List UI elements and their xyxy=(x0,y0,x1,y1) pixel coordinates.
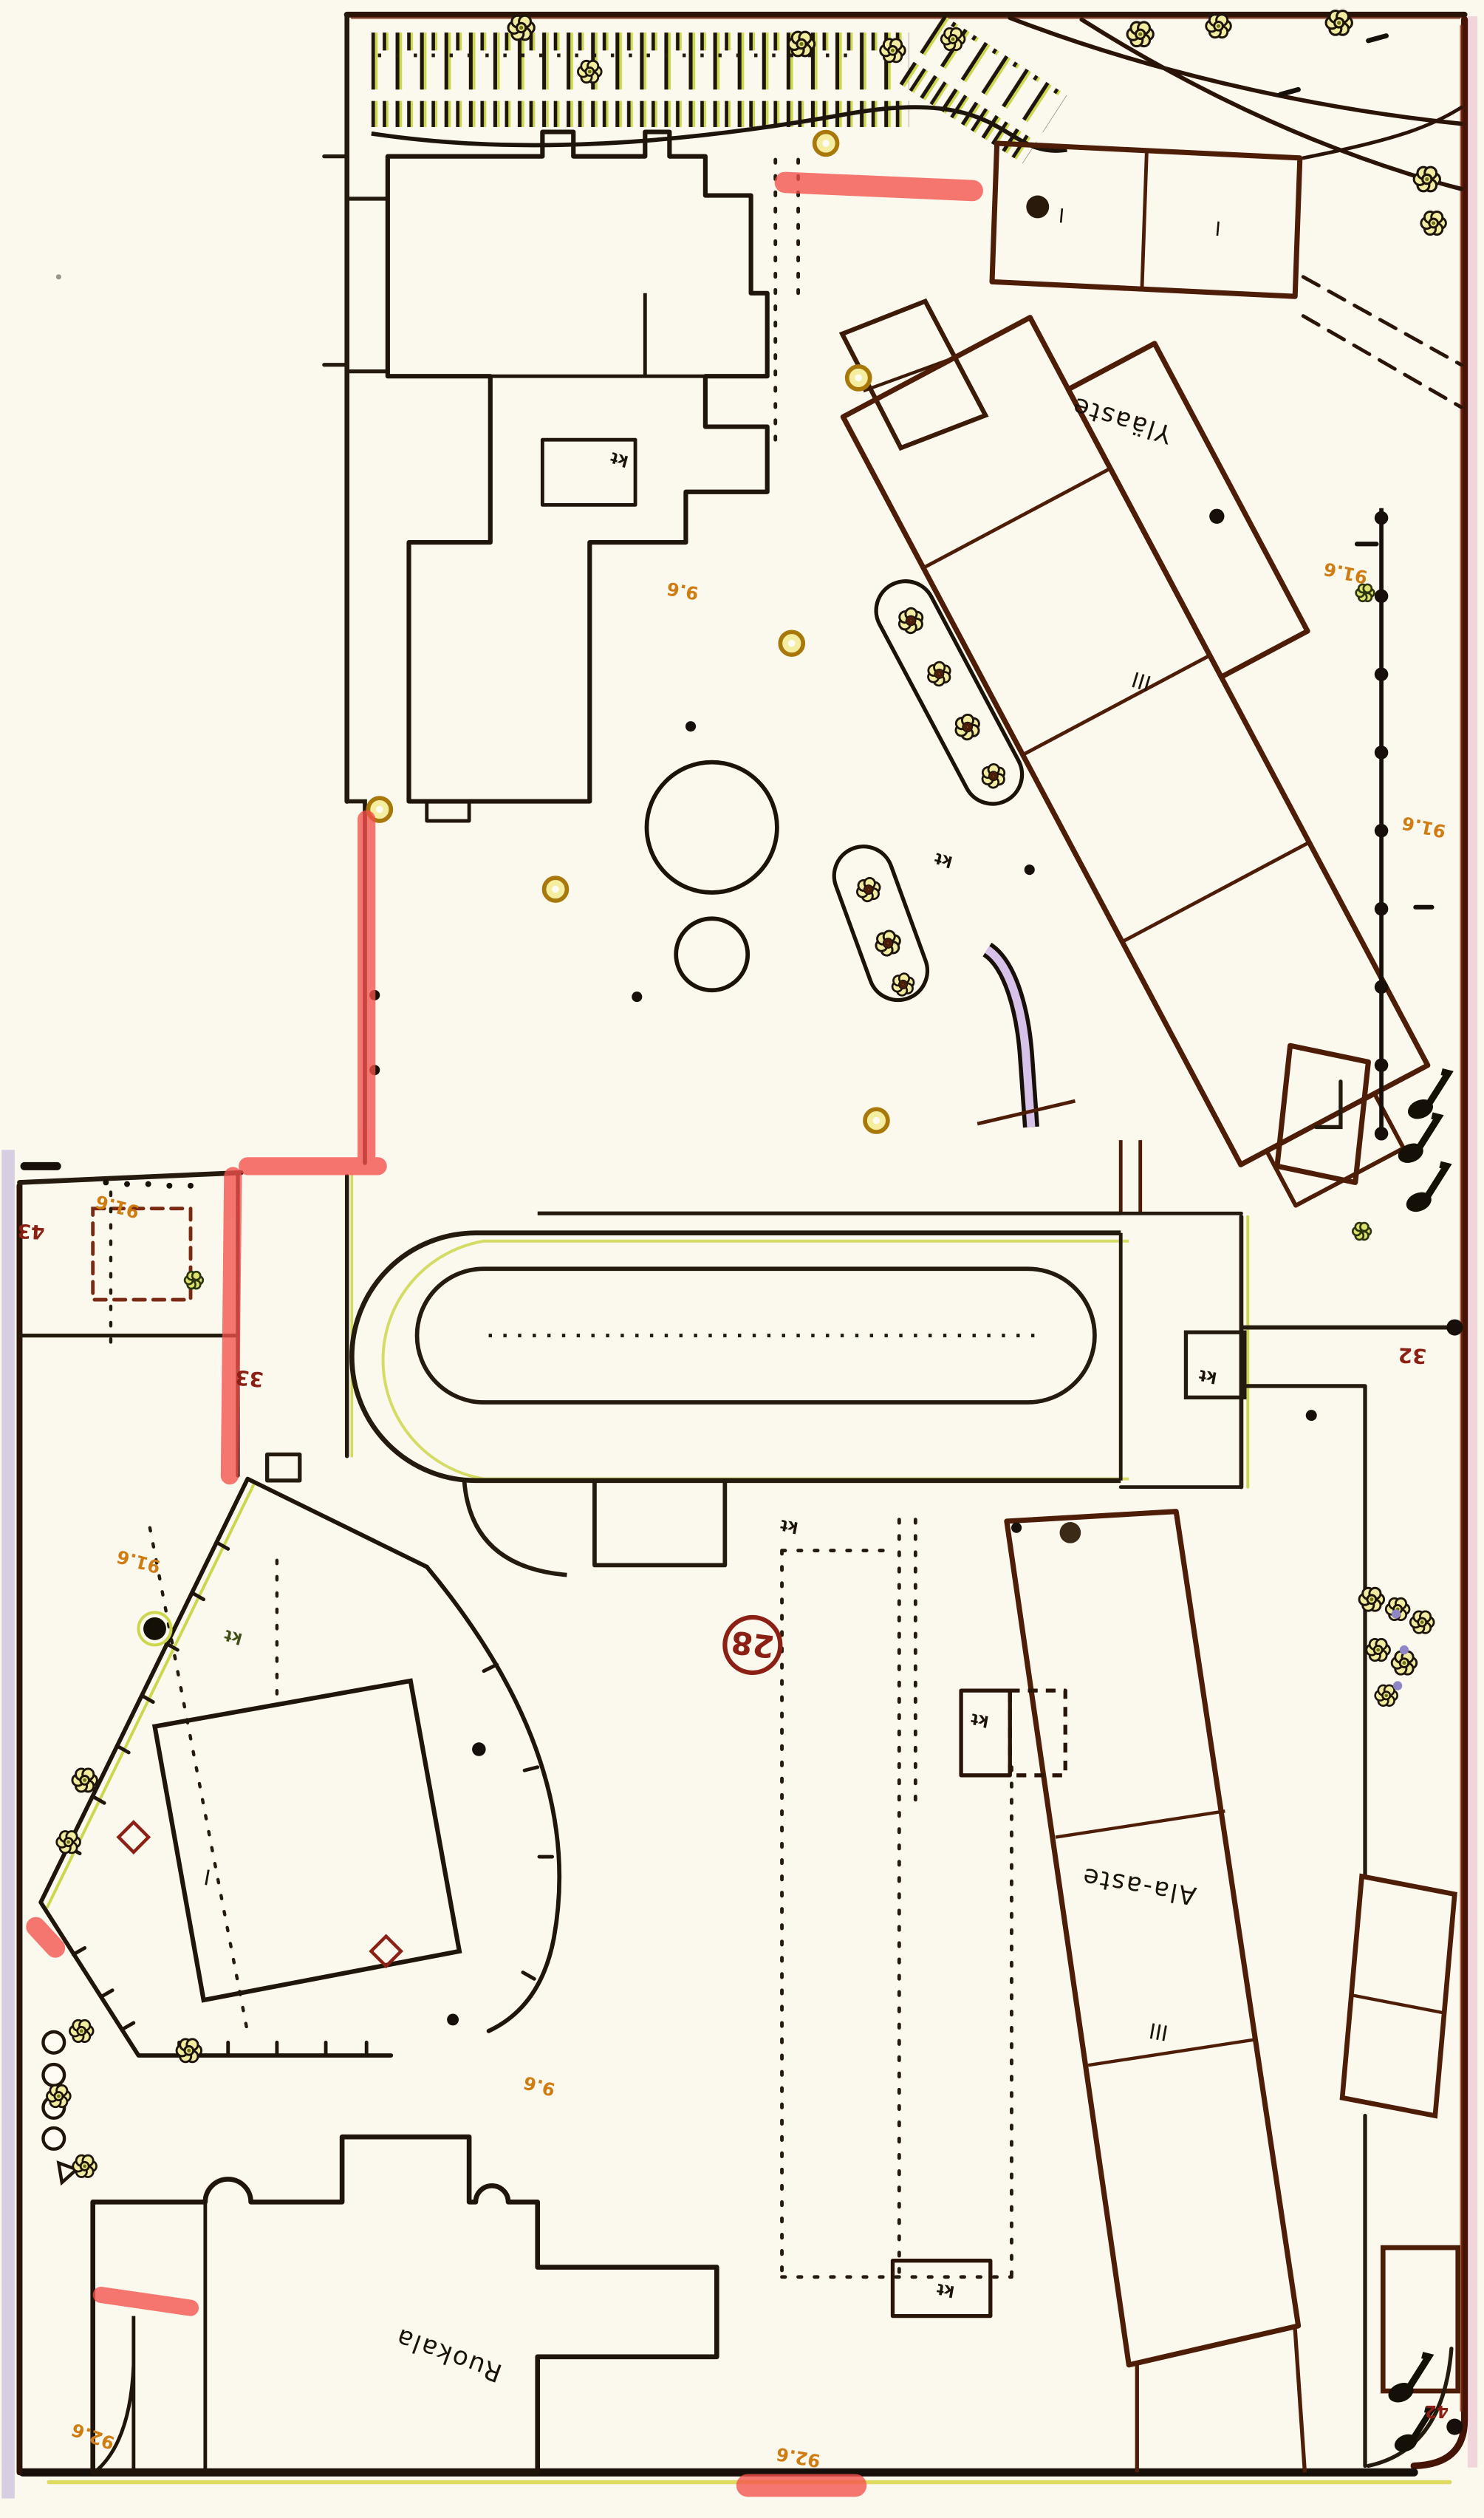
flower-icon xyxy=(1127,22,1153,47)
flower-icon xyxy=(1367,1639,1390,1660)
flower-icon xyxy=(69,2020,93,2041)
label-kt: kt xyxy=(935,2280,956,2301)
flower-icon xyxy=(1326,11,1352,35)
flower-icon xyxy=(57,1831,81,1852)
site-plan-drawing: Yläaste III Ala-aste III Ruokala I I I k… xyxy=(0,0,1484,2518)
flower-icon xyxy=(788,32,814,56)
small-flower-icon xyxy=(1353,1223,1371,1240)
plot-number-42: 42 xyxy=(1425,2401,1449,2420)
flower-icon xyxy=(47,2085,71,2106)
label-kt: kt xyxy=(969,1710,990,1730)
well-icon xyxy=(815,132,838,155)
plot-number-32: 32 xyxy=(1398,1342,1427,1368)
flower-icon xyxy=(881,39,906,62)
well-icon xyxy=(865,1109,888,1132)
flower-icon xyxy=(1359,1588,1384,1611)
flower-icon xyxy=(1421,212,1446,235)
flower-icon xyxy=(941,28,965,50)
plot-number-28: 28 xyxy=(729,1624,776,1665)
scanned-site-plan-page: Yläaste III Ala-aste III Ruokala I I I k… xyxy=(0,0,1484,2518)
flower-icon xyxy=(1392,1651,1417,1674)
label-kt: kt xyxy=(1197,1366,1218,1387)
flower-icon xyxy=(578,61,601,82)
flower-icon xyxy=(1410,1611,1434,1633)
plot-number-43: 43 xyxy=(17,1219,45,1243)
flower-icon xyxy=(73,2155,97,2177)
flower-icon xyxy=(177,2039,202,2062)
flower-icon xyxy=(1414,167,1440,191)
well-icon xyxy=(544,878,567,901)
flower-icon xyxy=(508,16,534,40)
small-flower-icon xyxy=(185,1272,203,1289)
flower-icon xyxy=(1206,15,1231,38)
plot-number-33: 33 xyxy=(234,1365,264,1391)
flower-icon xyxy=(72,1769,98,1792)
label-kt: kt xyxy=(779,1516,799,1537)
well-icon xyxy=(847,366,870,389)
well-icon xyxy=(780,632,803,655)
